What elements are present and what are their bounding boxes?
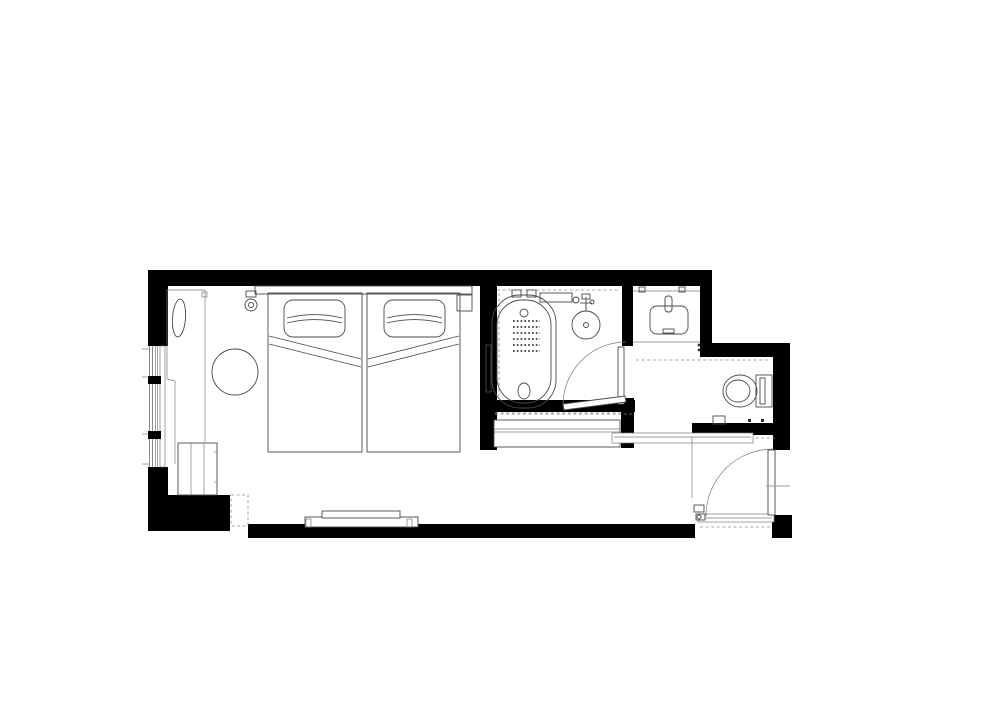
bedroom-area — [167, 286, 472, 527]
bathroom-door-frame — [618, 347, 624, 404]
tub-drain — [518, 383, 530, 399]
minibar-cabinet — [178, 443, 217, 495]
window-mullion-bottom — [148, 431, 161, 439]
vanity-faucet — [665, 296, 672, 312]
round-table — [212, 349, 258, 395]
window-mullion-top — [148, 376, 161, 384]
entry-door-swing-arc — [706, 449, 773, 516]
vanity-area — [633, 287, 700, 351]
pillow-1 — [284, 300, 345, 337]
toilet-paper-holder — [713, 416, 725, 424]
bed-2 — [367, 293, 460, 452]
vanity-basin — [650, 306, 688, 334]
closet-area — [494, 413, 620, 447]
toilet-bowl-inner — [726, 380, 750, 402]
fixture-dot-2 — [761, 419, 764, 422]
luggage-bench — [612, 433, 753, 443]
toilet-flush-panel — [760, 378, 765, 404]
entry-door-hinge — [694, 505, 705, 520]
wall-niche — [231, 495, 248, 526]
vanity-drain — [663, 329, 674, 333]
nightstand — [457, 295, 472, 311]
pivot-dot-1 — [698, 344, 701, 347]
wardrobe — [494, 420, 620, 447]
toilet — [723, 375, 772, 407]
entry-door — [694, 449, 790, 520]
wall-vanity-right — [700, 270, 712, 345]
bathroom-area — [486, 290, 626, 410]
floor-plan-drawing — [0, 0, 1000, 707]
pillow-2 — [384, 300, 445, 337]
wall-step — [700, 343, 790, 357]
antislip-mat — [513, 321, 540, 351]
entry-door-leaf — [768, 450, 775, 515]
tub-overflow — [520, 309, 528, 317]
washbasin — [572, 304, 600, 339]
toilet-area — [713, 375, 772, 424]
bathroom-door-swing-arc — [563, 342, 626, 405]
shower-fittings — [573, 294, 594, 309]
pivot-dot-2 — [698, 349, 701, 352]
floor-plan-canvas — [0, 0, 1000, 707]
bed-1 — [268, 293, 362, 452]
bathroom-door — [563, 342, 626, 410]
tv-console — [305, 511, 418, 527]
wall-entry-corner — [772, 515, 792, 538]
window — [142, 346, 165, 467]
entry-area — [612, 433, 790, 522]
fixture-dot-1 — [748, 419, 751, 422]
window-counter — [167, 290, 207, 464]
walls — [148, 270, 792, 538]
toilet-tank — [756, 375, 772, 407]
wall-left-upper — [148, 270, 168, 346]
bolster-cushion — [171, 299, 187, 338]
wall-bathroom-right-upper — [622, 270, 633, 346]
wall-right-upper — [773, 357, 790, 450]
duvet-folds — [269, 336, 459, 367]
tv — [322, 511, 400, 518]
entry-threshold — [698, 514, 774, 522]
